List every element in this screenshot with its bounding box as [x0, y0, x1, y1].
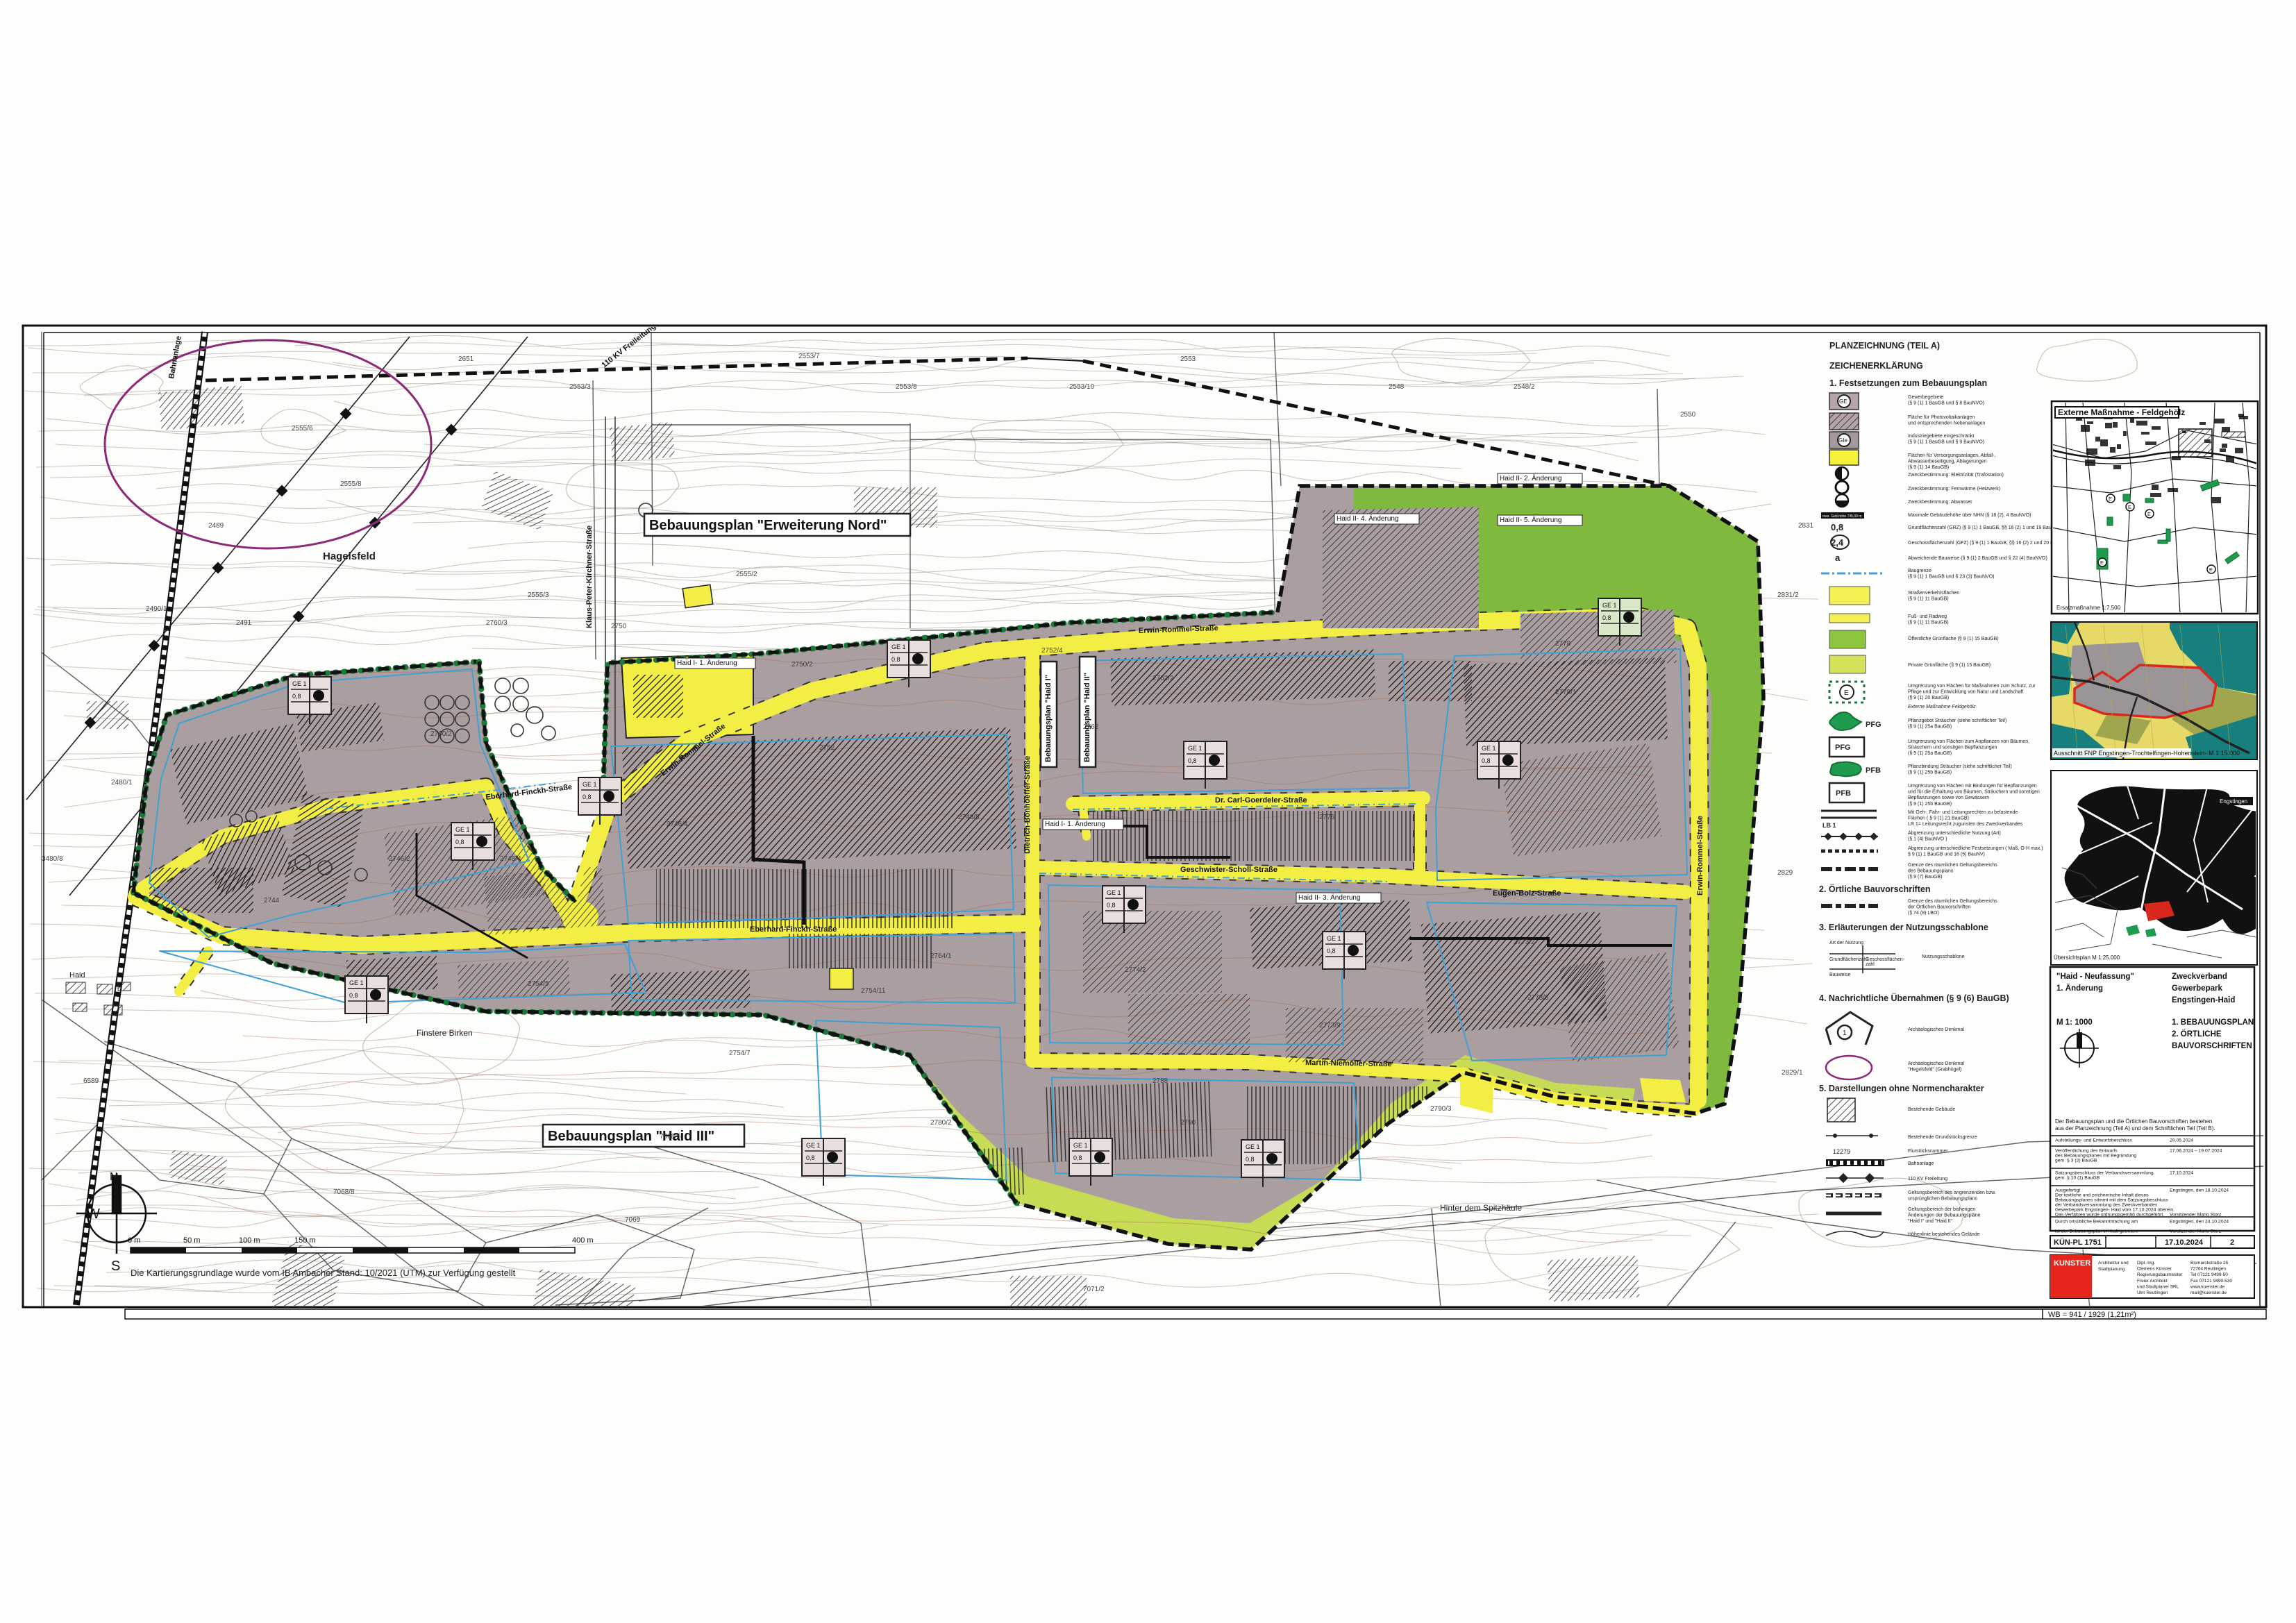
svg-text:0,8: 0,8: [1327, 948, 1336, 955]
svg-text:Zweckbestimmung: Elektrizität: Zweckbestimmung: Elektrizität (Trafostat…: [1908, 473, 2004, 478]
svg-text:(§ 9 (1) 14 BauGB): (§ 9 (1) 14 BauGB): [1908, 465, 1949, 470]
svg-text:Nutzungsschablone: Nutzungsschablone: [1922, 955, 1965, 959]
svg-text:Geschossflächen-: Geschossflächen-: [1866, 957, 1905, 962]
svg-text:12279: 12279: [1833, 1148, 1850, 1155]
svg-text:Haid II- 5. Änderung: Haid II- 5. Änderung: [1500, 516, 1562, 524]
svg-text:2750: 2750: [611, 623, 627, 630]
svg-text:und Stadtplaner SRL: und Stadtplaner SRL: [2137, 1284, 2179, 1289]
svg-text:Finstere Birken: Finstere Birken: [417, 1028, 473, 1038]
svg-text:Flurstücksnummer: Flurstücksnummer: [1908, 1149, 1948, 1154]
svg-text:Stadtplanung: Stadtplanung: [2098, 1267, 2125, 1272]
svg-text:LB 1: LB 1: [1822, 822, 1836, 829]
svg-text:M 1: 1000: M 1: 1000: [2056, 1018, 2093, 1027]
svg-text:Haid II- 4. Änderung: Haid II- 4. Änderung: [1336, 514, 1399, 523]
svg-text:(§ 9 (1) 25a BauGB): (§ 9 (1) 25a BauGB): [1908, 725, 1952, 730]
svg-text:7068/6: 7068/6: [660, 1133, 681, 1141]
svg-text:Bahnanlage: Bahnanlage: [1908, 1161, 1934, 1166]
svg-text:2831/2: 2831/2: [1777, 591, 1799, 599]
svg-text:1: 1: [1843, 1029, 1847, 1037]
svg-text:1. Festsetzungen zum Bebauungs: 1. Festsetzungen zum Bebauungsplan: [1829, 378, 1987, 388]
svg-text:Sträuchern und sonstigen Bepfl: Sträuchern und sonstigen Bepflanzungen: [1908, 746, 1997, 750]
svg-text:2553/7: 2553/7: [798, 353, 820, 360]
svg-text:"Haid - Neufassung": "Haid - Neufassung": [2056, 973, 2134, 981]
svg-text:2754/5: 2754/5: [528, 980, 549, 988]
svg-text:PFB: PFB: [1866, 766, 1881, 775]
svg-text:Abwasserbeseitigung, Ablagerun: Abwasserbeseitigung, Ablagerungen: [1908, 460, 1987, 464]
svg-text:max. Geb.höhe 745,00 m: max. Geb.höhe 745,00 m: [1822, 514, 1861, 519]
svg-text:Abgrenzung unterschiedliche Fe: Abgrenzung unterschiedliche Festsetzunge…: [1908, 846, 2043, 851]
svg-text:S: S: [111, 1259, 120, 1274]
svg-text:(§ 1 (4) BauNVO ): (§ 1 (4) BauNVO ): [1908, 837, 1947, 842]
svg-text:(§ 9 (1) 1 BauGB und § 8 BauNV: (§ 9 (1) 1 BauGB und § 8 BauNVO): [1908, 401, 1984, 406]
svg-text:110 KV Freileitung: 110 KV Freileitung: [600, 322, 657, 369]
svg-text:2746/4: 2746/4: [667, 821, 688, 828]
svg-text:E: E: [2147, 512, 2151, 517]
svg-text:Engstingen: Engstingen: [2220, 798, 2247, 805]
svg-text:Bebauungsplan "Haid I": Bebauungsplan "Haid I": [1044, 675, 1053, 762]
svg-text:Bebauungsplan "Haid II": Bebauungsplan "Haid II": [1083, 673, 1091, 762]
svg-text:2: 2: [2230, 1238, 2234, 1247]
svg-text:Archäologisches Denkmal: Archäologisches Denkmal: [1908, 1061, 1964, 1066]
svg-text:2754/7: 2754/7: [729, 1050, 751, 1057]
svg-text:Gewerbepark: Gewerbepark: [2172, 984, 2222, 993]
svg-text:0 m: 0 m: [128, 1236, 140, 1245]
svg-text:400 m: 400 m: [572, 1236, 594, 1245]
svg-text:Bebauungsplanes stimmt mit de: Bebauungsplanes stimmt mit dem Satzungsb…: [2055, 1198, 2168, 1203]
svg-text:(§ 9 (1) 1 BauGB und § 23 (3): (§ 9 (1) 1 BauGB und § 23 (3) BauNVO): [1908, 575, 1995, 580]
svg-text:Grundflächenzahl (GRZ) (§ 9 (1: Grundflächenzahl (GRZ) (§ 9 (1) 1 BauGB,…: [1908, 525, 2063, 530]
svg-text:2548: 2548: [1389, 383, 1405, 391]
svg-text:Öffentliche Grünfläche (§ 9 (: Öffentliche Grünfläche (§ 9 (1) 15 BauGB…: [1908, 636, 1999, 641]
svg-text:und für die Erhaltung von Bäum: und für die Erhaltung von Bäumen, Sträuc…: [1908, 790, 2040, 795]
svg-text:der Verbandsversammlung des Zw: der Verbandsversammlung des Zweckverband…: [2055, 1203, 2158, 1208]
svg-text:2831: 2831: [1798, 522, 1814, 530]
svg-text:Veröffentlichung des Entwurfs: Veröffentlichung des Entwurfs: [2055, 1149, 2118, 1154]
svg-text:Eberhard-Finckh-Straße: Eberhard-Finckh-Straße: [750, 925, 837, 934]
svg-text:Dr. Carl-Goerdeler-Straße: Dr. Carl-Goerdeler-Straße: [1215, 796, 1307, 805]
svg-text:Engstingen, den 24.10.2024: Engstingen, den 24.10.2024: [2170, 1220, 2229, 1225]
svg-text:GE 1: GE 1: [349, 979, 364, 986]
svg-text:Fuß- und Radweg: Fuß- und Radweg: [1908, 614, 1947, 619]
svg-text:Geltungsbereich des angrenzend: Geltungsbereich des angrenzenden bzw.: [1908, 1191, 1996, 1195]
svg-text:2746/2: 2746/2: [389, 855, 410, 863]
svg-text:Der textliche und zeichnerisch: Der textliche und zeichnerische Inhalt d…: [2055, 1193, 2149, 1198]
svg-text:(§ 9 (1) 11 BauGB): (§ 9 (1) 11 BauGB): [1908, 597, 1949, 602]
svg-text:2748/5: 2748/5: [958, 814, 980, 821]
svg-text:2555/8: 2555/8: [340, 480, 362, 488]
svg-text:Gewerbegebiete: Gewerbegebiete: [1908, 395, 1943, 400]
svg-text:2778/1: 2778/1: [1555, 689, 1577, 696]
svg-text:Erwin-Rommel-Straße: Erwin-Rommel-Straße: [1696, 816, 1704, 895]
svg-text:(§ 9 (1) 20 BauGB): (§ 9 (1) 20 BauGB): [1908, 696, 1949, 700]
svg-text:BAUVORSCHRIFTEN: BAUVORSCHRIFTEN: [2172, 1042, 2252, 1050]
svg-text:2548/2: 2548/2: [1514, 383, 1535, 391]
svg-text:2762/2: 2762/2: [1153, 675, 1174, 682]
svg-text:2553/10: 2553/10: [1069, 383, 1095, 391]
svg-text:2489: 2489: [208, 522, 224, 530]
svg-text:Durch ortsübliche Bekanntmachu: Durch ortsübliche Bekanntmachung am: [2055, 1220, 2138, 1225]
svg-text:Zweckbestimmung: Abwasser: Zweckbestimmung: Abwasser: [1908, 500, 1972, 505]
svg-text:2773/9: 2773/9: [1319, 1022, 1341, 1029]
svg-text:0,8: 0,8: [292, 693, 301, 700]
svg-text:5. Darstellungen ohne Normench: 5. Darstellungen ohne Normencharakter: [1819, 1084, 1984, 1093]
svg-text:7068/8: 7068/8: [333, 1188, 355, 1196]
svg-text:GE 1: GE 1: [806, 1142, 821, 1149]
svg-text:Klaus-Peter-Kirchner-Straße: Klaus-Peter-Kirchner-Straße: [585, 525, 594, 628]
svg-text:ursprünglichen Bebauungsplans: ursprünglichen Bebauungsplans: [1908, 1197, 1978, 1202]
svg-text:Dietrich-Bonhoeffer-Straße: Dietrich-Bonhoeffer-Straße: [1023, 756, 1032, 854]
svg-text:Dipl.-Ing.: Dipl.-Ing.: [2137, 1261, 2155, 1265]
svg-text:Geltungsbereich der bisherigen: Geltungsbereich der bisherigen: [1908, 1207, 1975, 1212]
svg-text:des Bebauungsplans: des Bebauungsplans: [1908, 869, 1954, 874]
svg-text:Änderungen der Bebauungspläne: Änderungen der Bebauungspläne: [1908, 1213, 1981, 1218]
svg-text:2555/2: 2555/2: [736, 571, 757, 578]
svg-text:(§ 9 (1) 25b BauGB): (§ 9 (1) 25b BauGB): [1908, 802, 1952, 807]
svg-text:Bauweise: Bauweise: [1829, 973, 1850, 977]
svg-text:Gewerbepark Engstingen- Haid v: Gewerbepark Engstingen- Haid vom 17.10.2…: [2055, 1208, 2175, 1213]
svg-text:E: E: [2109, 497, 2112, 502]
svg-text:Engstingen, den 18.10.2024: Engstingen, den 18.10.2024: [2170, 1188, 2229, 1193]
svg-text:2776: 2776: [1319, 814, 1335, 821]
svg-text:Clemens Künster: Clemens Künster: [2137, 1267, 2172, 1272]
svg-text:Zweckverband: Zweckverband: [2172, 973, 2227, 981]
svg-text:Bestehende Gebäude: Bestehende Gebäude: [1908, 1107, 1955, 1112]
svg-text:2744: 2744: [264, 897, 280, 905]
svg-text:100 m: 100 m: [239, 1236, 260, 1245]
svg-text:2553: 2553: [1180, 355, 1196, 363]
svg-text:2550: 2550: [1680, 411, 1696, 419]
svg-text:GE 1: GE 1: [583, 781, 597, 788]
svg-text:0,8: 0,8: [583, 793, 592, 800]
svg-text:17.10.2024: 17.10.2024: [2170, 1171, 2193, 1176]
svg-text:Pflege und zur Entwicklung von: Pflege und zur Entwicklung von Natur und…: [1908, 690, 2024, 695]
svg-text:3. Erläuterungen der Nutzungss: 3. Erläuterungen der Nutzungsschablone: [1819, 923, 1988, 932]
svg-text:2774/2: 2774/2: [1125, 966, 1146, 974]
svg-text:Freier Architekt: Freier Architekt: [2137, 1279, 2168, 1284]
svg-text:GE 1: GE 1: [1073, 1142, 1088, 1149]
svg-text:2762: 2762: [1083, 723, 1099, 731]
svg-text:Grundflächenzahl: Grundflächenzahl: [1829, 957, 1868, 962]
svg-text:(§ 74 (8) LBO): (§ 74 (8) LBO): [1908, 911, 1939, 916]
svg-text:Vorsitzender Mario Storz: Vorsitzender Mario Storz: [2170, 1229, 2222, 1234]
svg-text:1. Änderung: 1. Änderung: [2056, 984, 2103, 993]
svg-text:"Hegelsfeld" (Grabhügel): "Hegelsfeld" (Grabhügel): [1908, 1068, 1961, 1073]
svg-text:Art der Nutzung: Art der Nutzung: [1829, 941, 1863, 945]
svg-text:(§ 9 (1) 1 BauGB und § 9 BauNV: (§ 9 (1) 1 BauGB und § 9 BauNVO): [1908, 440, 1984, 445]
svg-text:Fläche für Photovoltaikanlagen: Fläche für Photovoltaikanlagen: [1908, 415, 1975, 420]
svg-text:72764 Reutlingen: 72764 Reutlingen: [2190, 1267, 2226, 1272]
svg-text:2651: 2651: [458, 355, 474, 363]
svg-text:7070: 7070: [861, 1313, 877, 1321]
svg-text:2,4: 2,4: [1831, 537, 1844, 548]
svg-text:2752: 2752: [819, 744, 835, 752]
svg-text:2555/3: 2555/3: [528, 591, 549, 599]
svg-text:2754/11: 2754/11: [861, 987, 886, 995]
svg-text:gem. § 10 (1) BauGB: gem. § 10 (1) BauGB: [2055, 1176, 2100, 1181]
svg-text:a: a: [1835, 553, 1841, 563]
svg-text:2. ÖRTLICHE: 2. ÖRTLICHE: [2172, 1029, 2222, 1038]
svg-text:Umgrenzung von Flächen zum Anp: Umgrenzung von Flächen zum Anpflanzen vo…: [1908, 739, 2029, 744]
svg-text:0,8: 0,8: [806, 1154, 815, 1161]
svg-text:Eugen-Bolz-Straße: Eugen-Bolz-Straße: [1493, 889, 1561, 898]
svg-text:2790: 2790: [1180, 1119, 1196, 1127]
svg-text:GE 1: GE 1: [1482, 745, 1496, 752]
svg-text:2553/8: 2553/8: [896, 383, 917, 391]
svg-text:GIe: GIe: [1838, 437, 1847, 444]
svg-text:7071/2: 7071/2: [1083, 1286, 1105, 1293]
svg-text:7071/1: 7071/1: [1750, 1348, 1771, 1356]
svg-text:2764/1: 2764/1: [930, 952, 952, 960]
svg-text:2760/3: 2760/3: [486, 619, 508, 627]
svg-text:Flächen für Versorgungsanlagen: Flächen für Versorgungsanlagen, Abfall-,: [1908, 453, 1996, 458]
svg-text:4. Nachrichtliche Übernahmen (: 4. Nachrichtliche Übernahmen (§ 9 (6) Ba…: [1819, 993, 2009, 1003]
svg-text:Übersichtsplan M 1:25.000: Übersichtsplan M 1:25.000: [2054, 955, 2120, 961]
svg-text:2555/6: 2555/6: [292, 425, 313, 432]
svg-text:WB = 941 / 1929 (1,21m²): WB = 941 / 1929 (1,21m²): [2048, 1311, 2136, 1319]
svg-text:0,8: 0,8: [1246, 1156, 1255, 1163]
svg-text:17.06.2024 – 19.07.2024: 17.06.2024 – 19.07.2024: [2170, 1149, 2222, 1154]
svg-text:Bismarckstraße 25: Bismarckstraße 25: [2190, 1261, 2229, 1265]
svg-text:2773/2: 2773/2: [1514, 939, 1535, 946]
svg-text:GE 1: GE 1: [1246, 1143, 1260, 1150]
svg-text:ist der Bebauungsplan in Kraft: ist der Bebauungsplan in Kraft getreten.: [2055, 1229, 2138, 1234]
svg-text:Haid I- 1. Änderung: Haid I- 1. Änderung: [677, 659, 737, 667]
svg-text:GE 1: GE 1: [455, 826, 470, 833]
svg-text:www.kuenster.de: www.kuenster.de: [2190, 1284, 2225, 1289]
svg-text:2553/3: 2553/3: [569, 383, 591, 391]
svg-text:LR 1= Leitungsrecht zugunsten: LR 1= Leitungsrecht zugunsten des Zweckv…: [1908, 822, 2023, 827]
svg-text:29.05.2024: 29.05.2024: [2170, 1138, 2193, 1143]
svg-text:Architektur und: Architektur und: [2098, 1261, 2129, 1265]
svg-text:Umgrenzung von Flächen mit Bin: Umgrenzung von Flächen mit Bindungen für…: [1908, 784, 2037, 789]
svg-text:Industriegebiete eingeschränkt: Industriegebiete eingeschränkt: [1908, 434, 1974, 439]
svg-text:Ausschnitt FNP Engstingen-Troc: Ausschnitt FNP Engstingen-Trochtelfingen…: [2054, 750, 2240, 757]
svg-text:Die Kartierungsgrundlage wurde: Die Kartierungsgrundlage wurde vom IB Am…: [131, 1268, 516, 1278]
svg-text:2788: 2788: [1153, 1077, 1168, 1085]
svg-text:Fax 07121 9499-530: Fax 07121 9499-530: [2190, 1279, 2232, 1284]
svg-text:Satzungsbeschluss der Verbands: Satzungsbeschluss der Verbandsversammlun…: [2055, 1171, 2154, 1176]
svg-text:"Haid I" und "Haid II": "Haid I" und "Haid II": [1908, 1219, 1953, 1224]
svg-text:110 KV Freileitung: 110 KV Freileitung: [1908, 1177, 1947, 1181]
svg-text:W: W: [87, 1206, 100, 1222]
svg-text:aus der Planzeichnung (Teil A): aus der Planzeichnung (Teil A) und dem S…: [2055, 1125, 2215, 1132]
svg-text:0,8: 0,8: [1602, 614, 1611, 621]
svg-text:Archäologisches Denkmal: Archäologisches Denkmal: [1908, 1027, 1964, 1032]
svg-text:0,8: 0,8: [1188, 757, 1197, 764]
svg-text:Mit Geh-, Fahr- und Leitungsre: Mit Geh-, Fahr- und Leitungsrechten zu b…: [1908, 810, 2018, 815]
svg-text:7071: 7071: [1180, 1355, 1196, 1363]
svg-text:mail@kuenster.de: mail@kuenster.de: [2190, 1290, 2227, 1295]
svg-text:E: E: [2209, 568, 2213, 573]
svg-text:Grenze des räumlichen Geltungs: Grenze des räumlichen Geltungsbereichs: [1908, 863, 1997, 868]
svg-text:GE 1: GE 1: [891, 644, 906, 650]
svg-text:0,8: 0,8: [455, 839, 464, 846]
svg-text:3480/8: 3480/8: [42, 855, 63, 863]
svg-text:Aufstellungs- und Entwurfsbesc: Aufstellungs- und Entwurfsbeschluss: [2055, 1138, 2133, 1143]
svg-text:E: E: [2100, 561, 2104, 566]
svg-text:N: N: [110, 1171, 118, 1183]
svg-text:2829: 2829: [1777, 869, 1793, 877]
svg-text:0,8: 0,8: [1107, 902, 1116, 909]
svg-text:Flächen ( § 9 (1) 21 BauGB): Flächen ( § 9 (1) 21 BauGB): [1908, 816, 1969, 821]
svg-text:2780/2: 2780/2: [930, 1119, 952, 1127]
svg-text:2748/4: 2748/4: [500, 855, 521, 863]
svg-text:2750/2: 2750/2: [791, 661, 813, 668]
svg-text:7069: 7069: [625, 1216, 641, 1224]
svg-text:Haid I- 1. Änderung: Haid I- 1. Änderung: [1045, 820, 1105, 828]
svg-text:0,8: 0,8: [1073, 1154, 1082, 1161]
svg-text:ZEICHENERKLÄRUNG: ZEICHENERKLÄRUNG: [1829, 360, 1923, 371]
svg-text:Pflanzbindung Sträucher (siehe: Pflanzbindung Sträucher (siehe schriftli…: [1908, 764, 2012, 769]
svg-text:2752/4: 2752/4: [1041, 647, 1063, 655]
svg-text:Bepflanzungen sowie von Gewäss: Bepflanzungen sowie von Gewässern: [1908, 796, 1989, 800]
svg-text:PLANZEICHNUNG (TEIL A): PLANZEICHNUNG (TEIL A): [1829, 341, 1940, 351]
svg-text:Baugrenze: Baugrenze: [1908, 569, 1932, 573]
svg-text:2778: 2778: [1555, 640, 1571, 648]
svg-text:2829/1: 2829/1: [1782, 1069, 1803, 1077]
svg-text:2491: 2491: [236, 619, 252, 627]
svg-text:GE 1: GE 1: [1188, 745, 1203, 752]
svg-text:6589: 6589: [83, 1077, 99, 1085]
svg-text:Geschossflächenzahl (GFZ) (§ 9: Geschossflächenzahl (GFZ) (§ 9 (1) 1 Bau…: [1908, 541, 2073, 546]
svg-text:Private Grünfläche (§ 9 (1) 15: Private Grünfläche (§ 9 (1) 15 BauGB): [1908, 663, 1991, 668]
svg-text:E: E: [1844, 689, 1849, 697]
svg-text:(§ 9 (1) 11 BauGB): (§ 9 (1) 11 BauGB): [1908, 621, 1949, 625]
svg-text:GE 1: GE 1: [1327, 935, 1341, 942]
svg-text:Bebauungsplan "Haid III": Bebauungsplan "Haid III": [548, 1129, 714, 1144]
svg-text:Haid: Haid: [69, 971, 85, 979]
svg-text:0,8: 0,8: [349, 992, 358, 999]
svg-text:GE 1: GE 1: [1107, 889, 1121, 896]
svg-text:Ausgefertigt: Ausgefertigt: [2055, 1188, 2080, 1193]
svg-text:Straßenverkehrsflächen: Straßenverkehrsflächen: [1908, 591, 1959, 596]
svg-text:Bestehende Grundstücksgrenze: Bestehende Grundstücksgrenze: [1908, 1135, 1977, 1140]
svg-text:Engstingen-Haid: Engstingen-Haid: [2172, 996, 2235, 1004]
svg-text:Tel 07121 9499-50: Tel 07121 9499-50: [2190, 1272, 2228, 1277]
svg-text:150 m: 150 m: [294, 1236, 316, 1245]
svg-text:(§ 9 (1) 25b BauGB): (§ 9 (1) 25b BauGB): [1908, 771, 1952, 775]
svg-text:PFG: PFG: [1835, 743, 1851, 752]
svg-text:Geschwister-Scholl-Straße: Geschwister-Scholl-Straße: [1180, 866, 1277, 874]
svg-text:und entsprechenden Nebenanlage: und entsprechenden Nebenanlagen: [1908, 421, 1985, 426]
svg-text:Ersatzmaßnahme 1:7.500: Ersatzmaßnahme 1:7.500: [2056, 605, 2121, 611]
svg-text:Externe Maßnahme Feldgehölz: Externe Maßnahme Feldgehölz: [1908, 705, 1976, 709]
svg-text:Maximale Gebäudehöhe über NHN: Maximale Gebäudehöhe über NHN (§ 18 (2),…: [1908, 513, 2031, 518]
svg-text:Haid II- 3. Änderung: Haid II- 3. Änderung: [1298, 893, 1361, 902]
svg-text:(§ 9 (7) BauGB): (§ 9 (7) BauGB): [1908, 875, 1942, 880]
svg-text:Hinter dem Spitzhäule: Hinter dem Spitzhäule: [1440, 1203, 1522, 1213]
svg-text:Regierungsbaumeister: Regierungsbaumeister: [2137, 1272, 2183, 1277]
svg-text:zahl: zahl: [1866, 962, 1875, 967]
svg-text:Abweichende Bauweise (§ 9 (1): Abweichende Bauweise (§ 9 (1) 2 BauGB un…: [1908, 556, 2047, 561]
svg-text:50 m: 50 m: [183, 1236, 200, 1245]
svg-text:GE 1: GE 1: [292, 680, 307, 687]
svg-text:Haid II- 2. Änderung: Haid II- 2. Änderung: [1500, 474, 1562, 482]
svg-text:KÜN-PL 1751: KÜN-PL 1751: [2054, 1238, 2102, 1247]
svg-text:Grenze des räumlichen Geltungs: Grenze des räumlichen Geltungsbereichs: [1908, 899, 1997, 904]
svg-text:KUNSTER: KUNSTER: [2054, 1259, 2090, 1268]
svg-text:0,8: 0,8: [1482, 757, 1491, 764]
svg-text:0,8: 0,8: [891, 656, 900, 663]
svg-text:Der Bebauungsplan und die Örtl: Der Bebauungsplan und die Örtlichen Bauv…: [2055, 1118, 2212, 1125]
svg-text:2490/1: 2490/1: [146, 605, 167, 613]
svg-text:Hagelsfeld: Hagelsfeld: [323, 550, 376, 562]
svg-text:Externe Maßnahme - Feldgehölz: Externe Maßnahme - Feldgehölz: [2058, 407, 2185, 417]
svg-text:PFG: PFG: [1866, 721, 1882, 729]
svg-text:Zweckbestimmung: Fernwärme (He: Zweckbestimmung: Fernwärme (Heizwerk): [1908, 487, 2000, 491]
svg-text:GE: GE: [1839, 398, 1847, 405]
svg-text:Ulm Reutlingen: Ulm Reutlingen: [2137, 1290, 2168, 1295]
svg-text:§ 9 (1) 1 BauGB und 16 (5) Bau: § 9 (1) 1 BauGB und 16 (5) BauNV): [1908, 852, 1985, 857]
svg-text:Pflanzgebot Sträucher (siehe s: Pflanzgebot Sträucher (siehe schriftlich…: [1908, 718, 2006, 723]
svg-text:PFB: PFB: [1836, 789, 1851, 798]
svg-text:GE 1: GE 1: [1602, 602, 1617, 609]
svg-text:der Örtlichen Bauvorschriften: der Örtlichen Bauvorschriften: [1908, 905, 1971, 910]
svg-text:Bebauungsplan "Erweiterung Nor: Bebauungsplan "Erweiterung Nord": [649, 518, 887, 533]
svg-text:(§ 9 (1) 25a BauGB): (§ 9 (1) 25a BauGB): [1908, 751, 1952, 756]
svg-text:Martin-Niemöller-Straße: Martin-Niemöller-Straße: [1305, 1059, 1392, 1068]
svg-text:17.10.2024: 17.10.2024: [2165, 1238, 2204, 1247]
svg-text:0,8: 0,8: [1831, 522, 1843, 532]
svg-text:Höhenlinie bestehendes Gelände: Höhenlinie bestehendes Gelände: [1908, 1232, 1980, 1237]
svg-text:E: E: [2128, 505, 2131, 510]
svg-text:2773/5: 2773/5: [1527, 994, 1549, 1002]
svg-text:gem. § 3 (2) BauGB: gem. § 3 (2) BauGB: [2055, 1159, 2097, 1163]
svg-text:2. Örtliche Bauvorschriften: 2. Örtliche Bauvorschriften: [1819, 884, 1930, 894]
svg-text:Umgrenzung von Flächen für Maß: Umgrenzung von Flächen für Maßnahmen zum…: [1908, 684, 2036, 689]
svg-text:des Bebauungsplanes mit Begrün: des Bebauungsplanes mit Begründung: [2055, 1154, 2136, 1159]
svg-text:2480/1: 2480/1: [111, 779, 133, 787]
svg-text:2790/3: 2790/3: [1430, 1105, 1452, 1113]
svg-text:Abgrenzung unterschiedliche Nu: Abgrenzung unterschiedliche Nutzung (Art…: [1908, 831, 2001, 836]
svg-text:1. BEBAUUNGSPLAN: 1. BEBAUUNGSPLAN: [2172, 1018, 2254, 1027]
svg-text:2760/2: 2760/2: [430, 730, 452, 738]
